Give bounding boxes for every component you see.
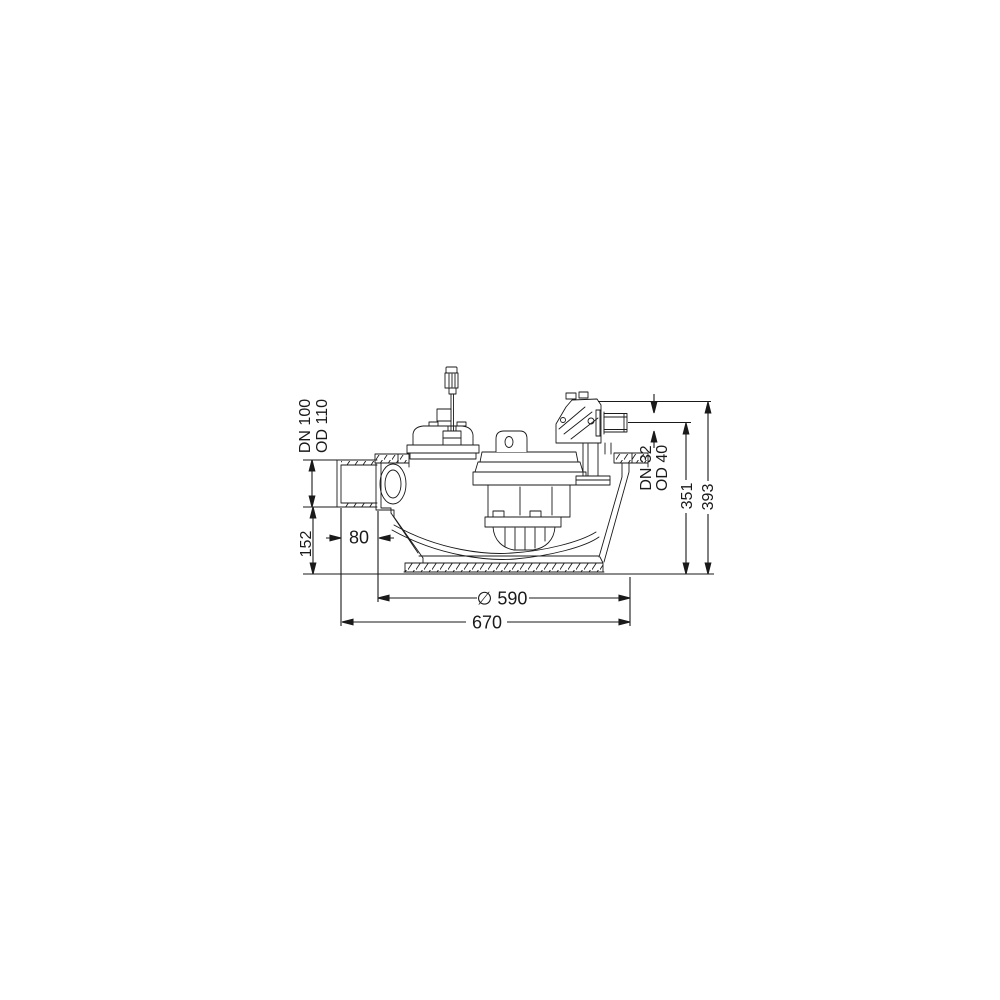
cable-clip	[437, 409, 451, 421]
overall-height-label: 393	[700, 484, 717, 511]
base-diameter-label: ∅ 590	[477, 589, 528, 609]
cable-gland	[445, 373, 458, 388]
technical-drawing-page: DN 100 OD 110 152 80 DN 32 OD 40 351 393…	[0, 0, 1000, 1000]
overall-width-label: 670	[472, 613, 502, 633]
outlet-height-label: 351	[679, 483, 696, 510]
dimension-drawing-svg: DN 100 OD 110 152 80 DN 32 OD 40 351 393…	[0, 0, 1000, 1000]
offset-label: 80	[349, 528, 369, 548]
motor-cover	[407, 422, 479, 459]
outlet-od-label: OD 40	[654, 445, 671, 491]
inlet-dn-label: DN 100	[297, 399, 314, 453]
invert-height-label: 152	[298, 531, 315, 558]
inlet-od-label: OD 110	[314, 399, 331, 453]
outlet-dn-label: DN 32	[638, 445, 655, 490]
pump-handle	[496, 431, 527, 452]
